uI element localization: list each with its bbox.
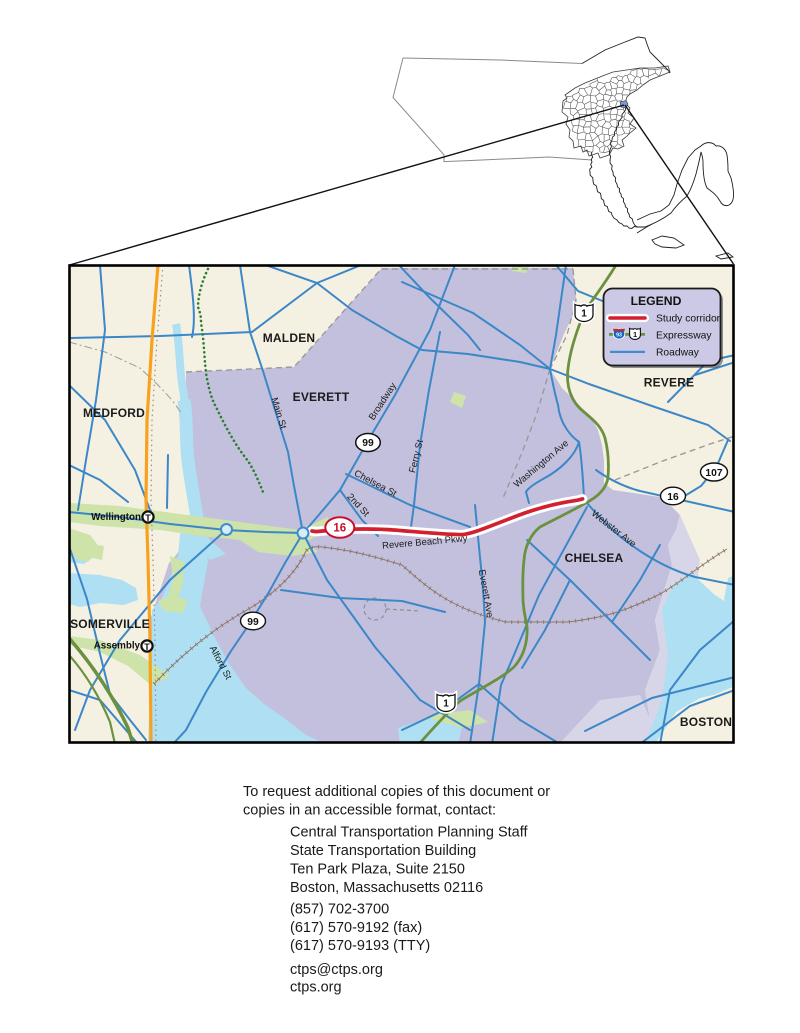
svg-text:Assembly: Assembly <box>94 641 141 652</box>
svg-text:93: 93 <box>616 333 622 339</box>
svg-text:BOSTON: BOSTON <box>680 715 732 729</box>
svg-text:Ten Park Plaza, Suite 2150: Ten Park Plaza, Suite 2150 <box>290 862 465 878</box>
svg-text:T: T <box>144 642 150 652</box>
svg-text:SOMERVILLE: SOMERVILLE <box>70 617 150 631</box>
svg-text:(617) 570-9193 (TTY): (617) 570-9193 (TTY) <box>290 938 430 954</box>
svg-text:ctps@ctps.org: ctps@ctps.org <box>290 962 383 978</box>
svg-text:EVERETT: EVERETT <box>293 390 350 404</box>
svg-text:MALDEN: MALDEN <box>263 331 316 345</box>
svg-text:copies in an accessible format: copies in an accessible format, contact: <box>243 803 496 819</box>
svg-text:REVERE: REVERE <box>644 376 695 390</box>
svg-text:(617) 570-9192 (fax): (617) 570-9192 (fax) <box>290 920 422 936</box>
svg-text:1: 1 <box>633 330 637 339</box>
svg-text:Study corridor: Study corridor <box>656 314 721 325</box>
svg-text:16: 16 <box>333 523 346 535</box>
svg-text:Wellington: Wellington <box>91 512 141 523</box>
svg-text:1: 1 <box>443 699 449 710</box>
svg-text:Roadway: Roadway <box>656 347 700 358</box>
svg-text:ctps.org: ctps.org <box>290 980 342 996</box>
svg-text:(857) 702-3700: (857) 702-3700 <box>290 902 389 918</box>
svg-text:1: 1 <box>581 309 587 320</box>
svg-text:16: 16 <box>667 492 679 503</box>
svg-text:T: T <box>145 513 151 523</box>
svg-text:Central Transportation Plannin: Central Transportation Planning Staff <box>290 825 528 841</box>
svg-text:CHELSEA: CHELSEA <box>565 551 624 565</box>
svg-text:Expressway: Expressway <box>656 330 712 341</box>
svg-text:107: 107 <box>705 468 722 479</box>
svg-text:To request additional copies o: To request additional copies of this doc… <box>243 784 550 800</box>
svg-text:99: 99 <box>247 617 259 628</box>
svg-text:Boston, Massachusetts 02116: Boston, Massachusetts 02116 <box>290 880 483 896</box>
svg-text:LEGEND: LEGEND <box>631 294 682 308</box>
svg-text:MEDFORD: MEDFORD <box>83 406 145 420</box>
svg-text:State Transportation Building: State Transportation Building <box>290 843 476 859</box>
svg-text:99: 99 <box>362 438 374 449</box>
